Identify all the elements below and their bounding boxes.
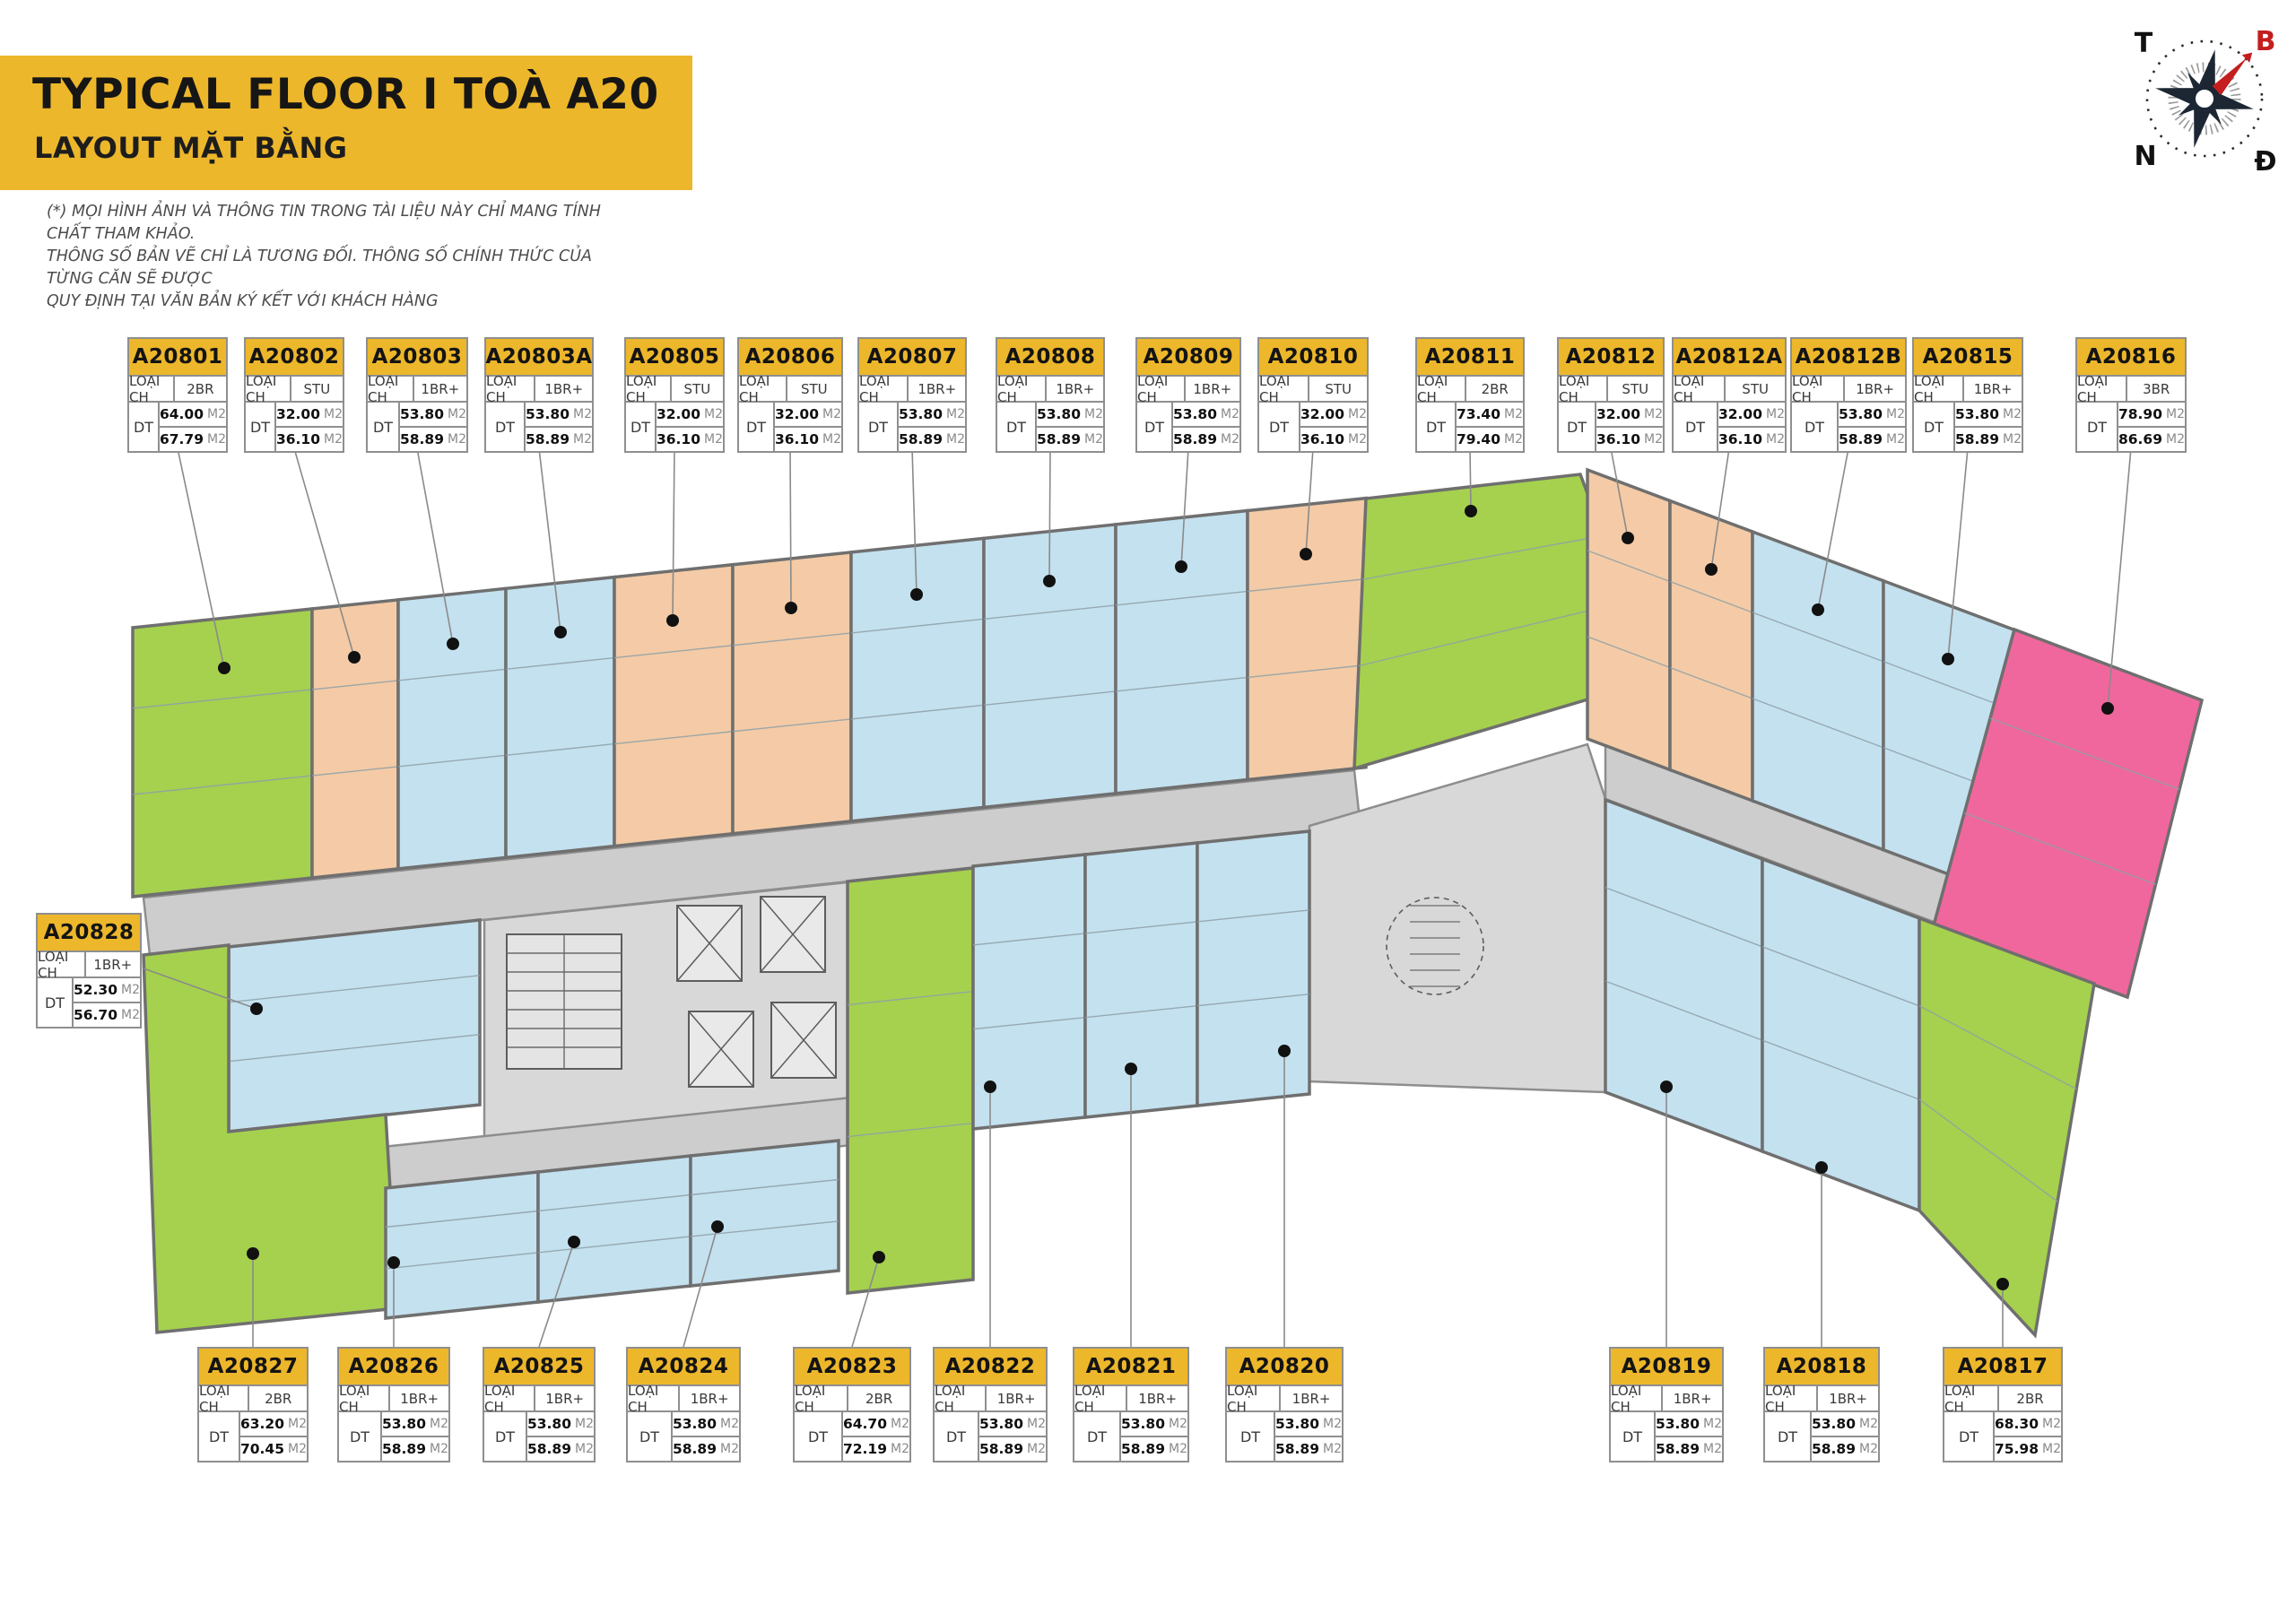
area-label: DT: [795, 1412, 843, 1461]
area-value: 72.19M2: [843, 1436, 909, 1461]
area-value: 58.89M2: [1955, 426, 2022, 451]
unit-id: A20825: [484, 1349, 594, 1386]
unit-card-A20803[interactable]: A20803LOẠI CH1BR+DT53.80M258.89M2: [366, 337, 468, 453]
area-value: 53.80M2: [673, 1412, 739, 1436]
unit-card-A20816[interactable]: A20816LOẠI CH3BRDT78.90M286.69M2: [2075, 337, 2187, 453]
unit-card-A20826[interactable]: A20826LOẠI CH1BR+DT53.80M258.89M2: [337, 1347, 450, 1462]
area-label: DT: [626, 403, 657, 451]
unit-id: A20817: [1944, 1349, 2061, 1386]
area-value: 79.40M2: [1457, 426, 1523, 451]
type-label: LOẠI CH: [368, 377, 414, 401]
unit-id: A20815: [1914, 339, 2022, 377]
area-label: DT: [484, 1412, 527, 1461]
unit-card-A20801[interactable]: A20801LOẠI CH2BRDT64.00M267.79M2: [127, 337, 228, 453]
type-value: STU: [291, 377, 343, 401]
area-value: 73.40M2: [1457, 403, 1523, 426]
unit-card-A20812A[interactable]: A20812ALOẠI CHSTUDT32.00M236.10M2: [1672, 337, 1787, 453]
unit-id: A20816: [2077, 339, 2185, 377]
unit-card-A20806[interactable]: A20806LOẠI CHSTUDT32.00M236.10M2: [737, 337, 843, 453]
type-label: LOẠI CH: [626, 377, 672, 401]
unit-id: A20803A: [486, 339, 592, 377]
type-value: STU: [1608, 377, 1663, 401]
unit-id: A20805: [626, 339, 723, 377]
type-value: 1BR+: [1964, 377, 2022, 401]
type-label: LOẠI CH: [997, 377, 1047, 401]
area-value: 70.45M2: [240, 1436, 307, 1461]
area-value: 78.90M2: [2118, 403, 2185, 426]
unit-card-A20824[interactable]: A20824LOẠI CH1BR+DT53.80M258.89M2: [626, 1347, 741, 1462]
area-value: 58.89M2: [1037, 426, 1103, 451]
unit-id: A20808: [997, 339, 1103, 377]
unit-cards-layer: A20801LOẠI CH2BRDT64.00M267.79M2A20802LO…: [0, 0, 2296, 1623]
type-label: LOẠI CH: [1674, 377, 1726, 401]
area-value: 32.00M2: [276, 403, 343, 426]
area-value: 36.10M2: [775, 426, 841, 451]
area-value: 53.80M2: [1275, 1412, 1342, 1436]
type-value: 2BR: [1999, 1386, 2061, 1410]
area-value: 53.80M2: [400, 403, 466, 426]
type-label: LOẠI CH: [2077, 377, 2127, 401]
area-value: 63.20M2: [240, 1412, 307, 1436]
type-value: 1BR+: [1663, 1386, 1722, 1410]
area-value: 64.00M2: [160, 403, 226, 426]
type-value: STU: [672, 377, 723, 401]
unit-card-A20818[interactable]: A20818LOẠI CH1BR+DT53.80M258.89M2: [1763, 1347, 1880, 1462]
area-label: DT: [628, 1412, 673, 1461]
area-value: 58.89M2: [673, 1436, 739, 1461]
unit-card-A20803A[interactable]: A20803ALOẠI CH1BR+DT53.80M258.89M2: [484, 337, 594, 453]
area-label: DT: [1137, 403, 1173, 451]
area-label: DT: [1914, 403, 1955, 451]
area-value: 86.69M2: [2118, 426, 2185, 451]
area-value: 32.00M2: [1300, 403, 1367, 426]
area-value: 58.89M2: [1656, 1436, 1722, 1461]
type-label: LOẠI CH: [129, 377, 175, 401]
area-label: DT: [1944, 1412, 1995, 1461]
unit-id: A20809: [1137, 339, 1239, 377]
unit-card-A20815[interactable]: A20815LOẠI CH1BR+DT53.80M258.89M2: [1912, 337, 2023, 453]
type-label: LOẠI CH: [1137, 377, 1186, 401]
type-label: LOẠI CH: [739, 377, 787, 401]
type-value: 1BR+: [1281, 1386, 1342, 1410]
type-value: 1BR+: [390, 1386, 448, 1410]
type-value: 2BR: [848, 1386, 909, 1410]
unit-id: A20806: [739, 339, 841, 377]
unit-card-A20805[interactable]: A20805LOẠI CHSTUDT32.00M236.10M2: [624, 337, 725, 453]
area-value: 36.10M2: [1300, 426, 1367, 451]
unit-card-A20819[interactable]: A20819LOẠI CH1BR+DT53.80M258.89M2: [1609, 1347, 1724, 1462]
type-label: LOẠI CH: [1611, 1386, 1663, 1410]
type-value: 1BR+: [414, 377, 466, 401]
area-value: 52.30M2: [74, 978, 140, 1002]
unit-card-A20812[interactable]: A20812LOẠI CHSTUDT32.00M236.10M2: [1557, 337, 1665, 453]
type-label: LOẠI CH: [1074, 1386, 1127, 1410]
area-value: 53.80M2: [1839, 403, 1905, 426]
unit-card-A20823[interactable]: A20823LOẠI CH2BRDT64.70M272.19M2: [793, 1347, 911, 1462]
type-label: LOẠI CH: [795, 1386, 848, 1410]
type-label: LOẠI CH: [1559, 377, 1608, 401]
unit-id: A20824: [628, 1349, 739, 1386]
area-value: 36.10M2: [1718, 426, 1785, 451]
area-value: 53.80M2: [1037, 403, 1103, 426]
area-label: DT: [935, 1412, 979, 1461]
area-value: 58.89M2: [979, 1436, 1046, 1461]
type-value: 2BR: [249, 1386, 307, 1410]
type-value: STU: [1726, 377, 1785, 401]
area-label: DT: [368, 403, 400, 451]
type-label: LOẠI CH: [1417, 377, 1466, 401]
type-value: 1BR+: [1845, 377, 1905, 401]
unit-id: A20822: [935, 1349, 1046, 1386]
type-label: LOẠI CH: [1259, 377, 1309, 401]
area-value: 58.89M2: [382, 1436, 448, 1461]
type-value: STU: [1309, 377, 1367, 401]
area-value: 53.80M2: [979, 1412, 1046, 1436]
type-label: LOẠI CH: [339, 1386, 390, 1410]
unit-card-A20828[interactable]: A20828LOẠI CH1BR+DT52.30M256.70M2: [36, 913, 142, 1028]
unit-id: A20803: [368, 339, 466, 377]
area-value: 32.00M2: [1718, 403, 1785, 426]
area-value: 32.00M2: [1596, 403, 1663, 426]
area-label: DT: [739, 403, 775, 451]
area-value: 58.89M2: [899, 426, 965, 451]
area-value: 53.80M2: [1173, 403, 1239, 426]
area-value: 53.80M2: [1812, 1412, 1878, 1436]
unit-card-A20821[interactable]: A20821LOẠI CH1BR+DT53.80M258.89M2: [1073, 1347, 1189, 1462]
type-value: 1BR+: [909, 377, 965, 401]
type-label: LOẠI CH: [486, 377, 535, 401]
area-label: DT: [1674, 403, 1718, 451]
area-value: 58.89M2: [1812, 1436, 1878, 1461]
poster: TYPICAL FLOOR I TOÀ A20 LAYOUT MẶT BẰNG …: [0, 0, 2296, 1623]
area-label: DT: [1792, 403, 1839, 451]
unit-id: A20812A: [1674, 339, 1785, 377]
area-label: DT: [339, 1412, 382, 1461]
unit-card-A20825[interactable]: A20825LOẠI CH1BR+DT53.80M258.89M2: [483, 1347, 596, 1462]
type-label: LOẠI CH: [38, 952, 86, 976]
type-value: 2BR: [1466, 377, 1523, 401]
type-label: LOẠI CH: [935, 1386, 987, 1410]
area-value: 36.10M2: [276, 426, 343, 451]
type-label: LOẠI CH: [1765, 1386, 1818, 1410]
area-value: 58.89M2: [1173, 426, 1239, 451]
area-label: DT: [1074, 1412, 1121, 1461]
area-label: DT: [1259, 403, 1300, 451]
type-value: 2BR: [175, 377, 226, 401]
area-value: 58.89M2: [1121, 1436, 1187, 1461]
area-label: DT: [997, 403, 1037, 451]
type-label: LOẠI CH: [1792, 377, 1845, 401]
area-value: 58.89M2: [400, 426, 466, 451]
unit-card-A20822[interactable]: A20822LOẠI CH1BR+DT53.80M258.89M2: [933, 1347, 1048, 1462]
type-value: STU: [787, 377, 841, 401]
area-label: DT: [1765, 1412, 1812, 1461]
unit-id: A20812B: [1792, 339, 1905, 377]
unit-id: A20807: [859, 339, 965, 377]
unit-id: A20826: [339, 1349, 448, 1386]
area-value: 53.80M2: [1955, 403, 2022, 426]
area-value: 75.98M2: [1995, 1436, 2061, 1461]
type-label: LOẠI CH: [859, 377, 909, 401]
area-label: DT: [859, 403, 899, 451]
unit-card-A20807[interactable]: A20807LOẠI CH1BR+DT53.80M258.89M2: [857, 337, 967, 453]
type-label: LOẠI CH: [1944, 1386, 1999, 1410]
area-label: DT: [38, 978, 74, 1027]
unit-id: A20810: [1259, 339, 1367, 377]
unit-card-A20812B[interactable]: A20812BLOẠI CH1BR+DT53.80M258.89M2: [1790, 337, 1907, 453]
area-value: 58.89M2: [1275, 1436, 1342, 1461]
type-value: 1BR+: [1186, 377, 1239, 401]
area-label: DT: [129, 403, 160, 451]
unit-id: A20828: [38, 915, 140, 952]
unit-id: A20801: [129, 339, 226, 377]
type-label: LOẠI CH: [484, 1386, 535, 1410]
type-value: 3BR: [2127, 377, 2185, 401]
unit-card-A20817[interactable]: A20817LOẠI CH2BRDT68.30M275.98M2: [1943, 1347, 2063, 1462]
type-label: LOẠI CH: [246, 377, 291, 401]
type-value: 1BR+: [535, 377, 592, 401]
type-label: LOẠI CH: [628, 1386, 680, 1410]
area-label: DT: [486, 403, 526, 451]
unit-card-A20808[interactable]: A20808LOẠI CH1BR+DT53.80M258.89M2: [996, 337, 1105, 453]
area-value: 67.79M2: [160, 426, 226, 451]
unit-id: A20819: [1611, 1349, 1722, 1386]
type-label: LOẠI CH: [199, 1386, 249, 1410]
type-label: LOẠI CH: [1227, 1386, 1281, 1410]
area-label: DT: [1611, 1412, 1656, 1461]
area-label: DT: [1417, 403, 1457, 451]
type-value: 1BR+: [1047, 377, 1103, 401]
area-value: 56.70M2: [74, 1002, 140, 1027]
type-value: 1BR+: [86, 952, 140, 976]
area-value: 32.00M2: [657, 403, 723, 426]
area-value: 68.30M2: [1995, 1412, 2061, 1436]
unit-card-A20810[interactable]: A20810LOẠI CHSTUDT32.00M236.10M2: [1257, 337, 1369, 453]
area-label: DT: [1559, 403, 1596, 451]
unit-id: A20811: [1417, 339, 1523, 377]
type-value: 1BR+: [987, 1386, 1046, 1410]
area-label: DT: [1227, 1412, 1275, 1461]
type-value: 1BR+: [680, 1386, 739, 1410]
area-value: 53.80M2: [526, 403, 592, 426]
area-value: 53.80M2: [1656, 1412, 1722, 1436]
unit-card-A20827[interactable]: A20827LOẠI CH2BRDT63.20M270.45M2: [197, 1347, 309, 1462]
area-value: 64.70M2: [843, 1412, 909, 1436]
area-value: 53.80M2: [527, 1412, 594, 1436]
area-value: 58.89M2: [1839, 426, 1905, 451]
unit-id: A20802: [246, 339, 343, 377]
type-label: LOẠI CH: [1914, 377, 1964, 401]
area-value: 58.89M2: [527, 1436, 594, 1461]
area-value: 36.10M2: [657, 426, 723, 451]
unit-card-A20809[interactable]: A20809LOẠI CH1BR+DT53.80M258.89M2: [1135, 337, 1241, 453]
unit-card-A20811[interactable]: A20811LOẠI CH2BRDT73.40M279.40M2: [1415, 337, 1525, 453]
unit-id: A20823: [795, 1349, 909, 1386]
type-value: 1BR+: [535, 1386, 594, 1410]
area-label: DT: [246, 403, 276, 451]
area-value: 58.89M2: [526, 426, 592, 451]
unit-id: A20820: [1227, 1349, 1342, 1386]
area-value: 32.00M2: [775, 403, 841, 426]
type-value: 1BR+: [1127, 1386, 1187, 1410]
area-value: 53.80M2: [1121, 1412, 1187, 1436]
unit-id: A20827: [199, 1349, 307, 1386]
area-label: DT: [2077, 403, 2118, 451]
unit-id: A20818: [1765, 1349, 1878, 1386]
type-value: 1BR+: [1818, 1386, 1878, 1410]
area-value: 53.80M2: [382, 1412, 448, 1436]
unit-id: A20812: [1559, 339, 1663, 377]
unit-id: A20821: [1074, 1349, 1187, 1386]
unit-card-A20802[interactable]: A20802LOẠI CHSTUDT32.00M236.10M2: [244, 337, 344, 453]
unit-card-A20820[interactable]: A20820LOẠI CH1BR+DT53.80M258.89M2: [1225, 1347, 1344, 1462]
area-value: 36.10M2: [1596, 426, 1663, 451]
area-label: DT: [199, 1412, 240, 1461]
area-value: 53.80M2: [899, 403, 965, 426]
